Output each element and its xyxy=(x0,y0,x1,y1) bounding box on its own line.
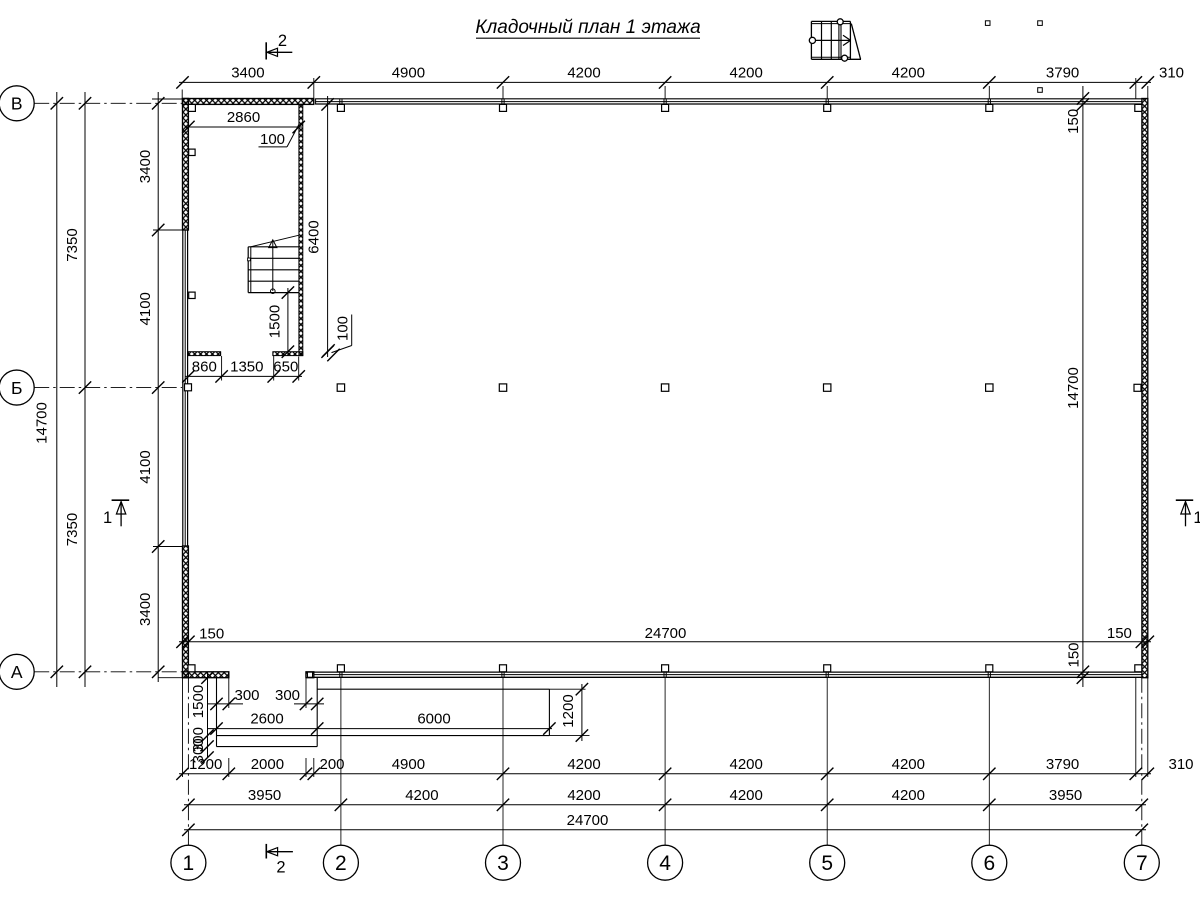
svg-text:650: 650 xyxy=(273,358,298,375)
svg-text:7: 7 xyxy=(1136,852,1148,875)
svg-text:Кладочный план 1 этажа: Кладочный план 1 этажа xyxy=(475,17,700,38)
svg-text:2860: 2860 xyxy=(227,109,260,126)
svg-text:1: 1 xyxy=(103,509,112,527)
svg-text:5: 5 xyxy=(821,852,833,875)
svg-text:150: 150 xyxy=(1065,109,1082,134)
svg-text:2: 2 xyxy=(335,852,347,875)
svg-text:310: 310 xyxy=(1159,65,1184,82)
svg-text:4100: 4100 xyxy=(137,450,154,483)
svg-text:7350: 7350 xyxy=(64,513,81,546)
svg-text:3790: 3790 xyxy=(1046,65,1079,82)
svg-text:860: 860 xyxy=(192,358,217,375)
svg-text:4200: 4200 xyxy=(892,65,925,82)
svg-text:4900: 4900 xyxy=(392,756,425,773)
svg-text:4200: 4200 xyxy=(730,65,763,82)
svg-text:4200: 4200 xyxy=(730,787,763,804)
svg-text:24700: 24700 xyxy=(645,625,687,642)
svg-text:1: 1 xyxy=(1193,509,1200,527)
svg-text:В: В xyxy=(11,94,23,114)
svg-text:300: 300 xyxy=(234,687,259,704)
svg-text:3400: 3400 xyxy=(137,150,154,183)
svg-text:150: 150 xyxy=(1065,642,1082,667)
svg-text:6400: 6400 xyxy=(305,220,322,253)
svg-text:4200: 4200 xyxy=(730,756,763,773)
svg-text:3: 3 xyxy=(497,852,509,875)
svg-text:3950: 3950 xyxy=(248,787,281,804)
svg-text:4200: 4200 xyxy=(567,756,600,773)
svg-text:2000: 2000 xyxy=(251,756,284,773)
svg-text:100: 100 xyxy=(334,316,351,341)
svg-text:А: А xyxy=(11,662,23,682)
svg-text:150: 150 xyxy=(199,625,224,642)
svg-text:4100: 4100 xyxy=(137,292,154,325)
svg-text:1200: 1200 xyxy=(189,756,222,773)
svg-text:2: 2 xyxy=(276,858,285,876)
svg-text:1500: 1500 xyxy=(266,305,283,338)
svg-text:4200: 4200 xyxy=(567,787,600,804)
svg-text:4200: 4200 xyxy=(567,65,600,82)
svg-text:1: 1 xyxy=(183,852,195,875)
svg-text:4200: 4200 xyxy=(892,756,925,773)
svg-text:150: 150 xyxy=(1107,625,1132,642)
svg-text:310: 310 xyxy=(1168,756,1193,773)
svg-text:6: 6 xyxy=(983,852,995,875)
svg-text:4900: 4900 xyxy=(392,65,425,82)
svg-text:3950: 3950 xyxy=(1049,787,1082,804)
svg-text:14700: 14700 xyxy=(1065,367,1082,409)
svg-text:300: 300 xyxy=(275,687,300,704)
svg-text:100: 100 xyxy=(260,131,285,148)
svg-text:3400: 3400 xyxy=(137,593,154,626)
svg-text:1350: 1350 xyxy=(230,358,263,375)
svg-text:2600: 2600 xyxy=(250,711,283,728)
svg-text:7350: 7350 xyxy=(64,228,81,261)
svg-text:Б: Б xyxy=(11,378,22,398)
svg-text:6000: 6000 xyxy=(417,711,450,728)
svg-text:3400: 3400 xyxy=(231,65,264,82)
svg-text:4200: 4200 xyxy=(405,787,438,804)
svg-text:1200: 1200 xyxy=(560,694,577,727)
svg-text:4: 4 xyxy=(659,852,671,875)
svg-text:14700: 14700 xyxy=(34,402,51,444)
svg-text:24700: 24700 xyxy=(567,812,609,829)
svg-text:2: 2 xyxy=(278,32,287,50)
svg-text:1500: 1500 xyxy=(190,685,207,718)
svg-text:3790: 3790 xyxy=(1046,756,1079,773)
svg-text:4200: 4200 xyxy=(892,787,925,804)
